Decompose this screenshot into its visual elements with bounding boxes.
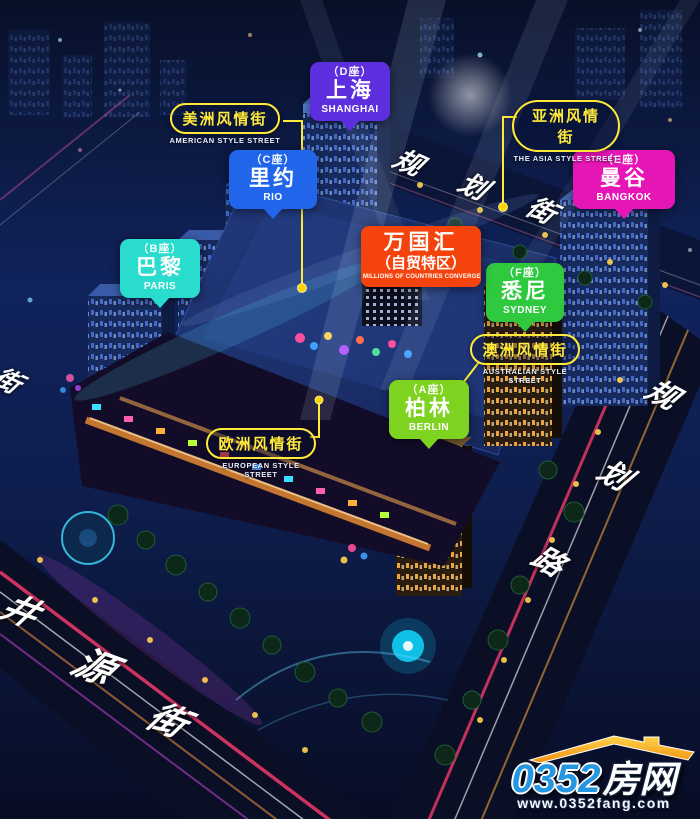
watermark-brand-suffix: 房网 <box>602 759 676 800</box>
building-name-en: RIO <box>233 191 313 204</box>
street-sign-zh: 澳洲风情街 <box>470 334 579 365</box>
building-name-en: BERLIN <box>393 421 465 434</box>
block-code: （A座） <box>393 384 465 397</box>
hub-title: 万国汇 <box>363 230 479 255</box>
building-label-paris: （B座） 巴黎 PARIS <box>120 239 200 298</box>
street-sign-zh: 美洲风情街 <box>170 103 279 134</box>
building-name-en: BANGKOK <box>577 191 671 204</box>
building-name-en: SYDNEY <box>490 304 560 317</box>
street-sign-asia: 亚洲风情街 THE ASIA STYLE STREET <box>512 100 620 163</box>
block-code: （B座） <box>124 243 196 256</box>
street-sign-australian: 澳洲风情街 AUSTRALIAN STYLE STREET <box>470 334 580 385</box>
watermark-url: www.0352fang.com <box>490 795 698 811</box>
block-code: （F座） <box>490 267 560 280</box>
street-sign-en: AMERICAN STYLE STREET <box>166 136 284 145</box>
street-sign-en: EUROPEAN STYLE STREET <box>206 461 316 479</box>
street-sign-en: THE ASIA STYLE STREET <box>512 154 620 163</box>
street-sign-european: 欧洲风情街 EUROPEAN STYLE STREET <box>206 428 316 479</box>
building-name-zh: 里约 <box>233 167 313 191</box>
building-label-berlin: （A座） 柏林 BERLIN <box>389 380 469 439</box>
building-name-zh: 巴黎 <box>124 256 196 280</box>
block-code: （D座） <box>314 66 386 79</box>
street-sign-zh: 亚洲风情街 <box>512 100 620 152</box>
street-sign-en: AUSTRALIAN STYLE STREET <box>470 367 580 385</box>
building-label-rio: （C座） 里约 RIO <box>229 150 317 209</box>
building-name-en: PARIS <box>124 280 196 293</box>
building-label-sydney: （F座） 悉尼 SYDNEY <box>486 263 564 322</box>
building-label-shanghai: （D座） 上海 SHANGHAI <box>310 62 390 121</box>
hub-subtitle: （自贸特区） <box>363 255 479 273</box>
building-name-zh: 上海 <box>314 79 386 103</box>
night-aerial-site-plan: （D座） 上海 SHANGHAI （C座） 里约 RIO （E座） 曼谷 BAN… <box>0 0 700 819</box>
building-name-en: SHANGHAI <box>314 103 386 116</box>
watermark-0352fang: 0352房网 www.0352fang.com <box>490 733 698 815</box>
hub-label-wanguohui: 万国汇 （自贸特区） MILLIONS OF COUNTRIES CONVERG… <box>361 226 481 287</box>
street-sign-zh: 欧洲风情街 <box>206 428 315 459</box>
street-sign-american: 美洲风情街 AMERICAN STYLE STREET <box>166 103 284 145</box>
building-name-zh: 柏林 <box>393 397 465 421</box>
hub-tagline-en: MILLIONS OF COUNTRIES CONVERGE <box>363 273 479 282</box>
block-code: （C座） <box>233 154 313 167</box>
building-name-zh: 曼谷 <box>577 167 671 191</box>
building-name-zh: 悉尼 <box>490 280 560 304</box>
